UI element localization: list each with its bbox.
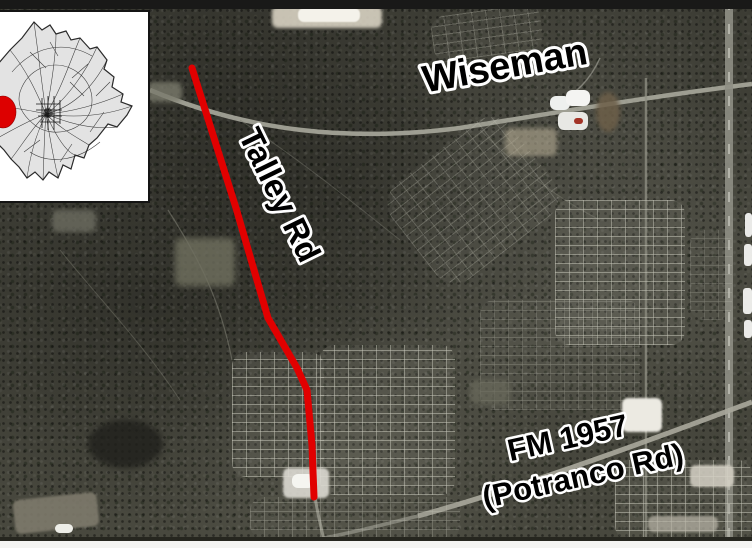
page-margin (0, 541, 752, 548)
edge-label-fragment (744, 320, 752, 338)
label-talley-rd: Talley Rd (232, 122, 328, 268)
satellite-basemap: Wiseman Talley Rd FM 1957 (Potranco Rd) (0, 0, 752, 548)
edge-label-fragment (745, 213, 752, 237)
photo-top-edge (0, 0, 752, 9)
inset-county-shape (0, 22, 132, 180)
edge-label-fragment (743, 288, 752, 314)
label-wiseman: Wiseman (419, 31, 590, 101)
edge-label-fragment (744, 244, 752, 266)
inset-city-core (43, 108, 53, 118)
inset-county-svg (0, 12, 150, 201)
aerial-map-figure: Wiseman Talley Rd FM 1957 (Potranco Rd) (0, 0, 752, 548)
inset-locator-map (0, 10, 150, 203)
